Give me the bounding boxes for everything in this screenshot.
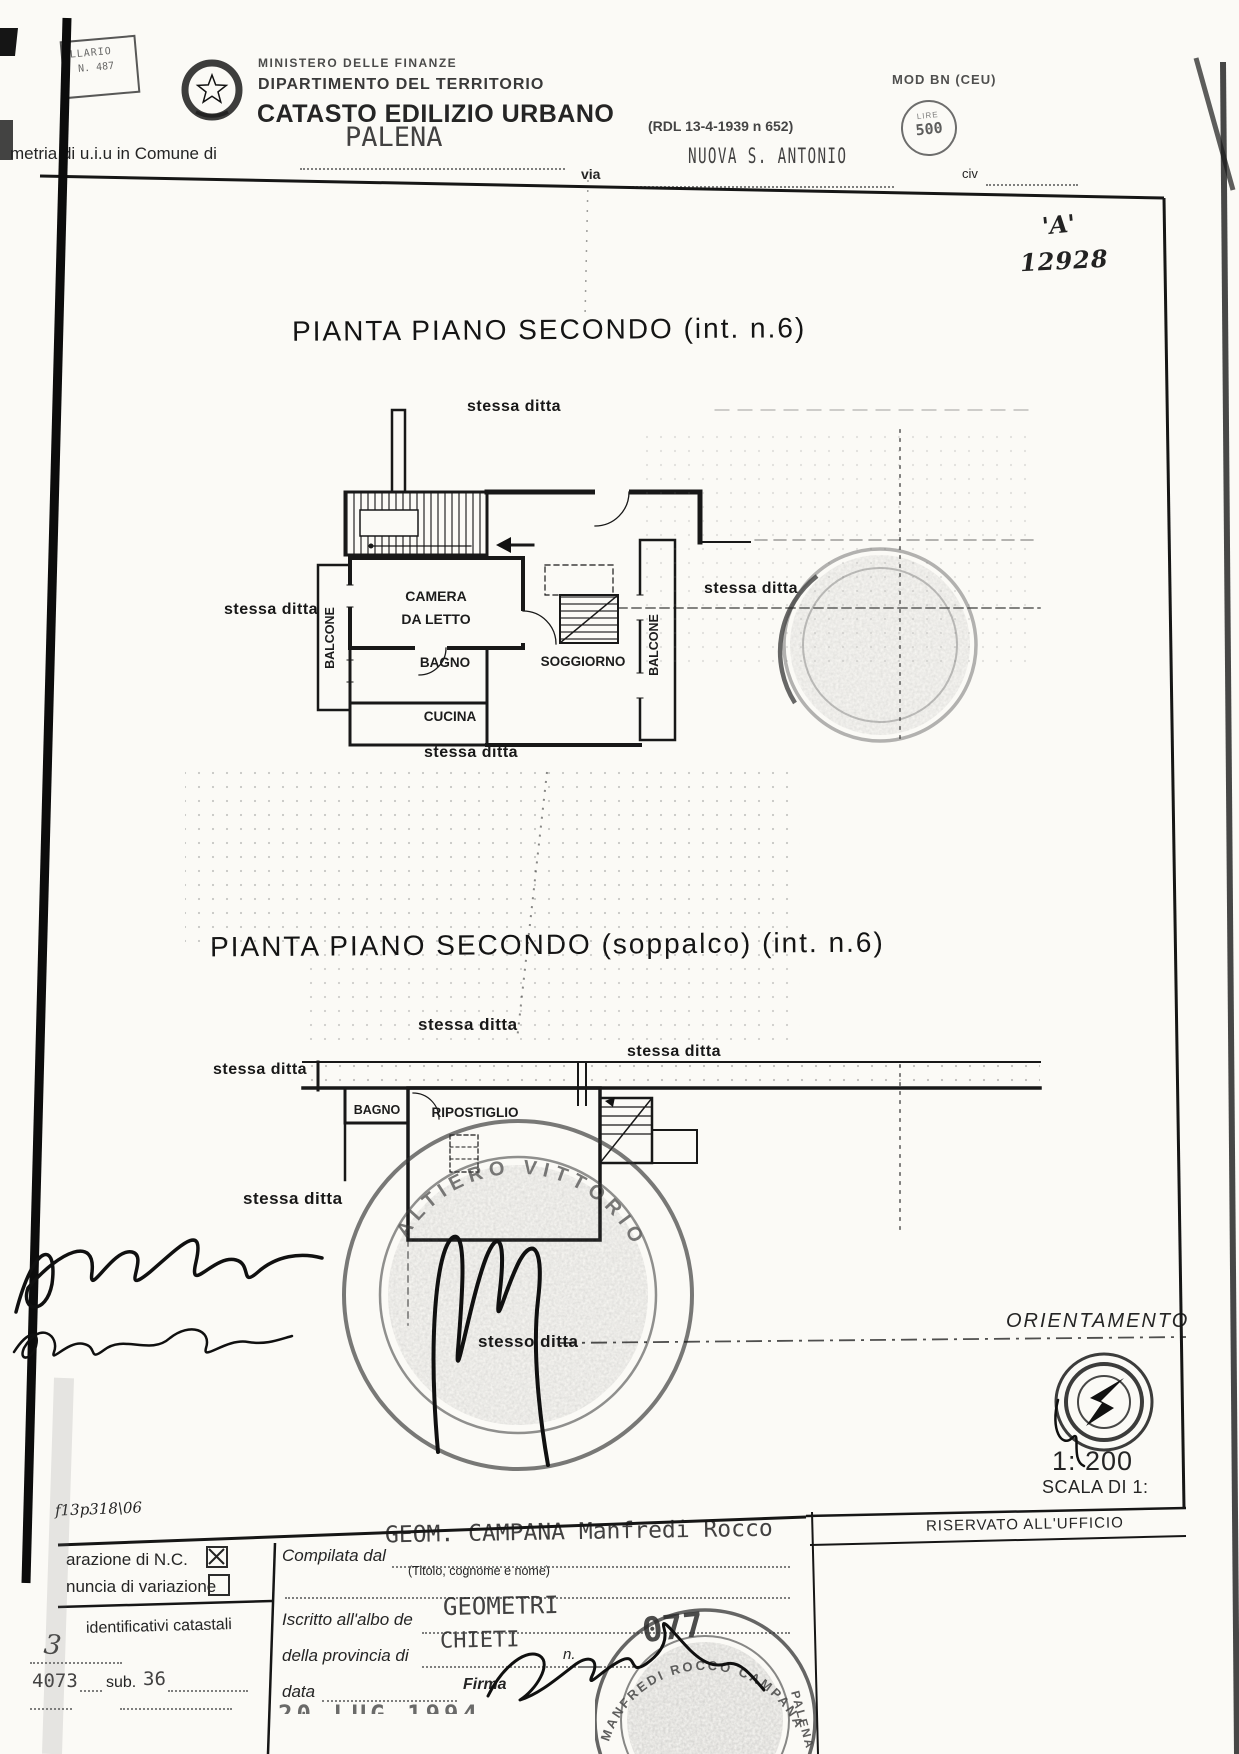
iscritto-label: Iscritto all'albo de (282, 1610, 413, 1630)
stessa-ditta-plan2-top: stessa ditta (418, 1015, 518, 1035)
date-stamp-text: 20 LUG 1994 (278, 1700, 538, 1714)
identificativi-dotted-1 (30, 1660, 122, 1664)
compilata-value: GEOM. CAMPANA Manfredi Rocco (385, 1516, 773, 1549)
signature-owner-1 (16, 1240, 322, 1312)
via-dotted-line (604, 184, 894, 188)
compilata-label: Compilata dal (282, 1546, 386, 1566)
ministry-line2: DIPARTIMENTO DEL TERRITORIO (258, 76, 544, 94)
date-stamp-clipped: 20 LUG 1994 (278, 1700, 538, 1714)
main-box-top-border (40, 176, 1164, 198)
particella-value: 4073 (32, 1670, 78, 1692)
sub-value: 36 (143, 1668, 166, 1690)
riservato-under-rule (810, 1536, 1186, 1545)
riservato-label: RISERVATO ALL'UFFICIO (926, 1514, 1124, 1534)
checkbox-dichiarazione-checked (206, 1546, 228, 1568)
stamp-arc-text: ALTIERO VITTORIO (392, 1157, 650, 1252)
compass-icon (1040, 1350, 1168, 1460)
stessa-ditta-plan1-bottom: stessa ditta (424, 744, 518, 762)
stessa-ditta-plan2-lower-left: stessa ditta (243, 1189, 343, 1209)
sub-dotted (168, 1688, 248, 1692)
large-round-stamp: ALTIERO VITTORIO (328, 1110, 713, 1480)
stessa-ditta-plan1-left: stessa ditta (224, 601, 318, 619)
left-scan-edge-strip (26, 18, 67, 1583)
signature-owner-2 (14, 1329, 292, 1357)
edge-blob-1 (0, 28, 18, 56)
form-vertical-divider-2 (812, 1512, 818, 1754)
left-column-divider-rule (58, 1601, 272, 1607)
handwritten-number: 12928 (1019, 244, 1109, 278)
room-label-soggiorno: SOGGIORNO (541, 654, 626, 669)
handwritten-foglio: 3 (42, 1629, 62, 1662)
floor-plan-soppalco: BAGNO RIPOSTIGLIO (295, 1035, 1045, 1335)
scale-label: SCALA DI 1: (1042, 1477, 1149, 1498)
civ-dotted-line (986, 182, 1078, 186)
civ-label: civ (962, 166, 978, 181)
n-dotted (580, 1664, 638, 1668)
bollo-stamp-box: LLARIO N. 487 (60, 35, 141, 99)
room-label-bagno-soppalco: BAGNO (354, 1103, 401, 1117)
last-dotted-2 (120, 1706, 232, 1710)
handwritten-letter: 'A' (1041, 208, 1077, 240)
italy-emblem-icon (170, 46, 254, 138)
dot-grid-texture-1 (185, 762, 800, 942)
scanned-cadastral-document: LLARIO N. 487 MINISTERO DELLE FINANZE DI… (0, 0, 1239, 1754)
checkbox-denuncia-empty (208, 1574, 230, 1596)
dash-dot-boundary-line (560, 1337, 1186, 1343)
left-gray-smudge (52, 1378, 64, 1754)
dotted-boundary-vertical (517, 772, 547, 1040)
via-label: via (581, 166, 600, 182)
right-scan-edge (1223, 62, 1237, 1754)
room-label-balcone-right: BALCONE (647, 614, 661, 676)
room-label-cucina: CUCINA (424, 709, 477, 724)
firma-label: Firma (463, 1676, 507, 1694)
bollo-500-stamp: LIRE 500 (898, 97, 960, 159)
scale-value: 1: 200 (1052, 1446, 1133, 1477)
n-value-stamped: 077 (640, 1605, 705, 1651)
mod-label: MOD BN (CEU) (892, 72, 996, 87)
room-label-bagno: BAGNO (420, 655, 470, 670)
floor-plan-piano-secondo: CAMERA DA LETTO BAGNO CUCINA SOGGIORNO B… (295, 405, 1045, 775)
room-label-camera-1: CAMERA (405, 588, 466, 604)
via-value: NUOVA S. ANTONIO (688, 144, 847, 168)
bollo-box-line1: LLARIO (69, 44, 135, 61)
right-corner-edge (1196, 58, 1233, 190)
plan1-title: PIANTA PIANO SECONDO (int. n.6) (292, 312, 806, 348)
footer-note: f13p318\06 (55, 1498, 143, 1519)
room-label-balcone-left: BALCONE (323, 607, 337, 669)
comune-dotted-line (300, 166, 565, 170)
law-reference: (RDL 13-4-1939 n 652) (648, 118, 793, 134)
faded-round-stamp (765, 528, 1000, 763)
n-label: n. (563, 1646, 576, 1663)
stessa-ditta-plan1-right: stessa ditta (704, 580, 798, 598)
identificativi-label: identificativi catastali (86, 1616, 232, 1638)
geometra-round-stamp: MANFREDI ROCCO CAMPANA PALENA (595, 1572, 830, 1754)
comune-label: metria di u.i.u in Comune di (10, 144, 217, 164)
last-dotted-1 (30, 1706, 72, 1710)
plan2-title: PIANTA PIANO SECONDO (soppalco) (int. n.… (210, 927, 885, 964)
provincia-label: della provincia di (282, 1646, 409, 1666)
room-label-camera-2: DA LETTO (401, 611, 470, 627)
titolo-hint: (Titolo, cognome e nome) (408, 1564, 550, 1578)
bollo-500-value: 500 (902, 117, 956, 140)
comune-value: PALENA (345, 122, 443, 153)
stessa-ditta-plan2-left: stessa ditta (213, 1061, 307, 1079)
stessa-ditta-plan2-right: stessa ditta (627, 1043, 721, 1061)
orientamento-label: ORIENTAMENTO (1006, 1310, 1189, 1333)
bollo-box-line2: N. 487 (78, 59, 137, 75)
dichiarazione-label: arazione di N.C. (66, 1550, 188, 1570)
data-label: data (282, 1682, 315, 1702)
svg-text:ALTIERO VITTORIO: ALTIERO VITTORIO (392, 1157, 650, 1252)
ministry-line1: MINISTERO DELLE FINANZE (258, 56, 457, 70)
provincia-dotted (422, 1664, 600, 1668)
dot-grid-texture-3 (640, 430, 1030, 670)
dotted-header-vertical (585, 180, 588, 318)
stesso-ditta-stamp: stesso ditta (478, 1332, 578, 1352)
sub-label: sub. (106, 1674, 136, 1692)
stessa-ditta-plan1-top: stessa ditta (467, 398, 561, 416)
stamp3-side-text: PALENA (788, 1689, 817, 1751)
svg-text:MANFREDI ROCCO CAMPANA: MANFREDI ROCCO CAMPANA (597, 1658, 807, 1743)
signature-firma (488, 1624, 764, 1700)
riservato-top-rule (806, 1508, 1186, 1516)
room-label-ripostiglio: RIPOSTIGLIO (431, 1105, 518, 1120)
provincia-value: CHIETI (440, 1627, 520, 1653)
stamp3-arc-text: MANFREDI ROCCO CAMPANA (597, 1658, 807, 1743)
particella-dotted (80, 1688, 102, 1692)
denuncia-label: nuncia di variazione (66, 1577, 216, 1597)
albo-value: GEOMETRI (443, 1591, 559, 1621)
form-vertical-divider-1 (268, 1543, 275, 1754)
